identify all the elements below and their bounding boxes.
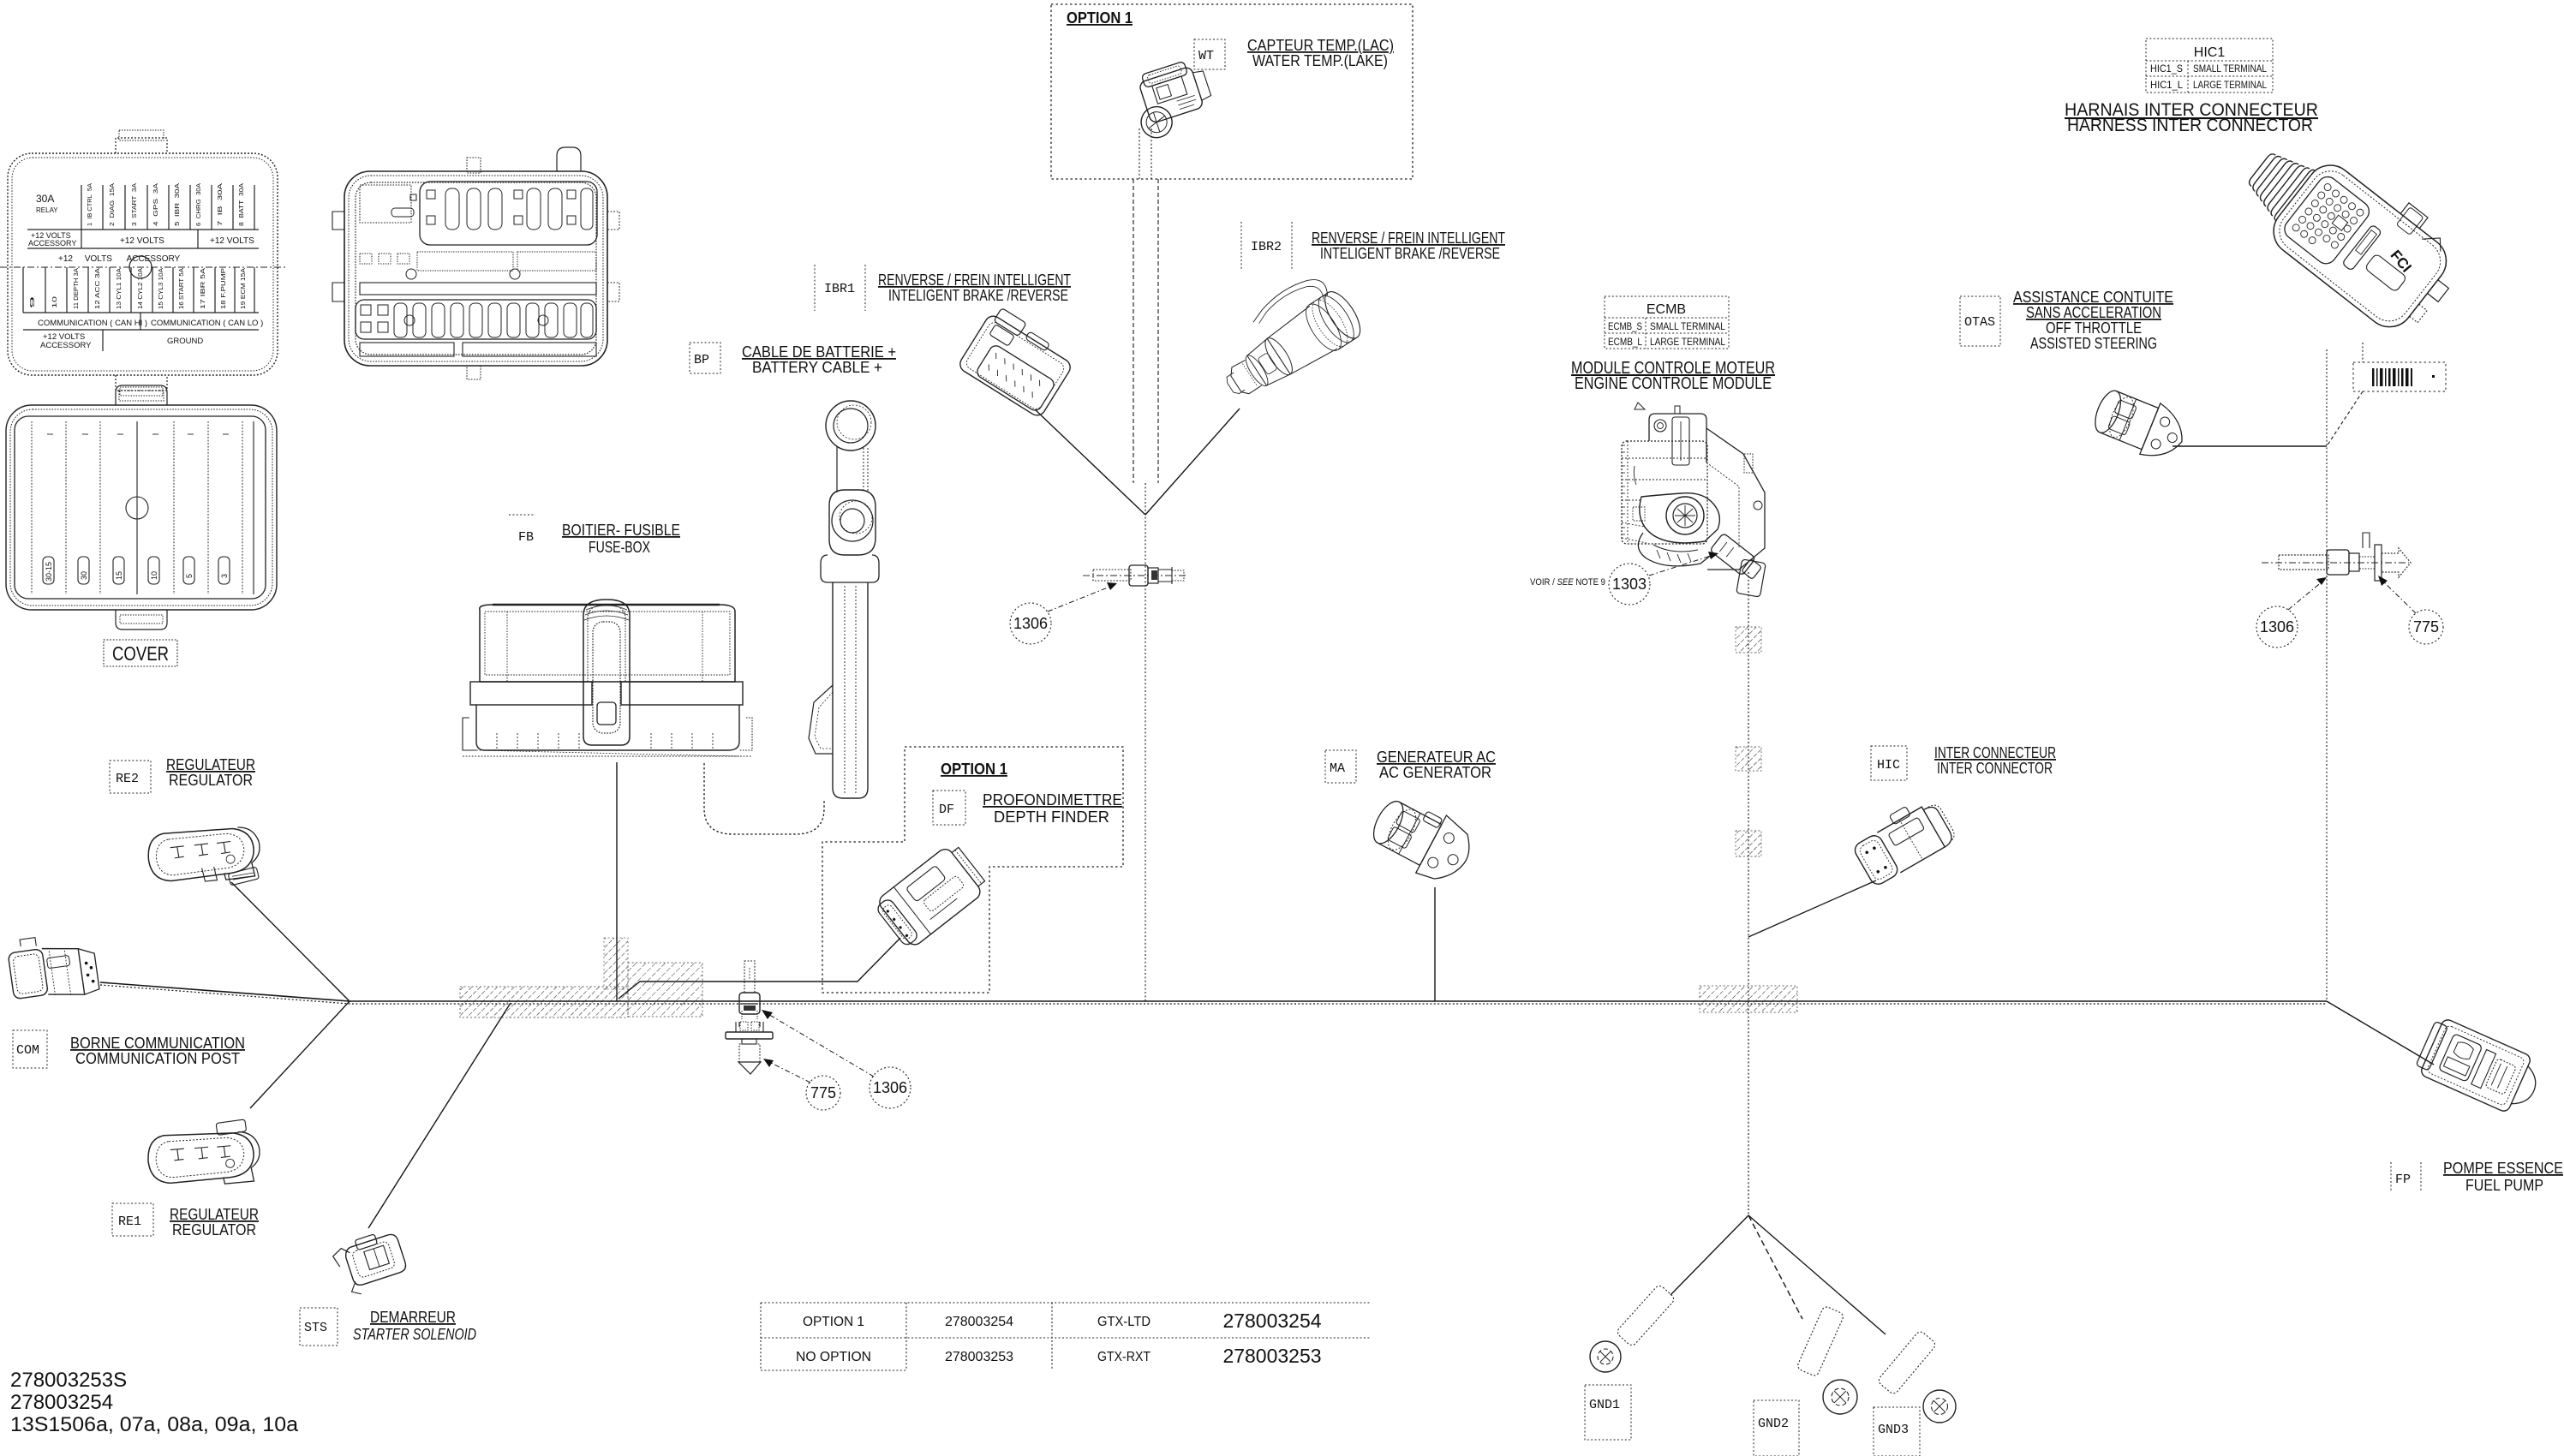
svg-text:ECMB_L: ECMB_L <box>1608 336 1642 348</box>
svg-text:BATTERY CABLE +: BATTERY CABLE + <box>752 359 882 376</box>
svg-text:15 CYL3 10A: 15 CYL3 10A <box>157 268 164 309</box>
svg-text:3: 3 <box>220 574 229 578</box>
svg-text:13 CYL1 10A: 13 CYL1 10A <box>115 268 123 309</box>
svg-text:GND1: GND1 <box>1589 1398 1620 1412</box>
svg-text:GROUND: GROUND <box>167 337 203 346</box>
svg-text:+12 VOLTS ACCESSORY: +12 VOLTS ACCESSORY <box>58 254 181 264</box>
svg-text:OFF THROTTLE: OFF THROTTLE <box>2046 319 2142 337</box>
svg-text:DEPTH FINDER: DEPTH FINDER <box>994 809 1109 826</box>
svg-text:ENGINE CONTROLE MODULE: ENGINE CONTROLE MODULE <box>1575 374 1772 393</box>
svg-text:HARNESS INTER CONNECTOR: HARNESS INTER CONNECTOR <box>2067 116 2313 135</box>
svg-text:STARTER SOLENOID: STARTER SOLENOID <box>353 1326 476 1343</box>
svg-text:CAPTEUR TEMP.(LAC): CAPTEUR TEMP.(LAC) <box>1247 37 1394 54</box>
svg-text:30A: 30A <box>36 193 54 205</box>
svg-text:775: 775 <box>2413 618 2439 636</box>
svg-text:BORNE COMMUNICATION: BORNE COMMUNICATION <box>70 1035 245 1052</box>
svg-text:INTER CONNECTOR: INTER CONNECTOR <box>1937 760 2053 777</box>
svg-text:5: 5 <box>185 574 194 578</box>
svg-text:SMALL TERMINAL: SMALL TERMINAL <box>2193 63 2267 75</box>
svg-text:7 IB 30A: 7 IB 30A <box>216 183 224 226</box>
svg-text:ECMB: ECMB <box>1647 302 1686 317</box>
svg-text:2 DIAG 15A: 2 DIAG 15A <box>108 183 116 226</box>
svg-text:COMMUNICATION ( CAN HI ): COMMUNICATION ( CAN HI ) <box>38 319 147 328</box>
svg-text:IBR2: IBR2 <box>1251 240 1282 254</box>
svg-text:COMMUNICATION ( CAN LO ): COMMUNICATION ( CAN LO ) <box>151 319 263 328</box>
svg-text:VOIR / SEE NOTE 9: VOIR / SEE NOTE 9 <box>1530 577 1605 588</box>
svg-text:IBR1: IBR1 <box>824 282 855 296</box>
svg-text:BOITIER- FUSIBLE: BOITIER- FUSIBLE <box>562 522 680 539</box>
svg-text:INTELIGENT BRAKE /REVERSE: INTELIGENT BRAKE /REVERSE <box>888 287 1068 304</box>
svg-text:OPTION 1: OPTION 1 <box>941 761 1007 778</box>
svg-text:REGULATEUR: REGULATEUR <box>170 1206 259 1223</box>
svg-text:CABLE DE BATTERIE +: CABLE DE BATTERIE + <box>742 343 896 361</box>
svg-text:15: 15 <box>115 571 123 580</box>
svg-text:FUEL PUMP: FUEL PUMP <box>2465 1177 2543 1194</box>
svg-text:RENVERSE / FREIN INTELLIGENT: RENVERSE / FREIN INTELLIGENT <box>1312 230 1505 247</box>
svg-text:SMALL TERMINAL: SMALL TERMINAL <box>1650 320 1725 332</box>
svg-text:PROFONDIMETTRE: PROFONDIMETTRE <box>983 791 1122 809</box>
svg-text:278003253: 278003253 <box>1222 1345 1321 1367</box>
svg-text:6 CHRG 30A: 6 CHRG 30A <box>194 183 202 226</box>
svg-text:278003253S: 278003253S <box>10 1369 127 1392</box>
svg-text:5 IBR 30A: 5 IBR 30A <box>173 183 181 226</box>
svg-text:10: 10 <box>51 296 58 308</box>
svg-text:1 IB CTRL 5A: 1 IB CTRL 5A <box>86 183 93 226</box>
svg-text:8 BATT 30A: 8 BATT 30A <box>237 183 245 226</box>
svg-text:13S1506a, 07a, 08a, 09a, 10a: 13S1506a, 07a, 08a, 09a, 10a <box>10 1413 299 1436</box>
svg-text:12 ACC 3A: 12 ACC 3A <box>93 268 101 309</box>
svg-text:AC GENERATOR: AC GENERATOR <box>1379 764 1491 781</box>
svg-text:RELAY: RELAY <box>36 206 58 214</box>
svg-text:STS: STS <box>304 1321 327 1335</box>
svg-text:+12 VOLTS: +12 VOLTS <box>210 236 254 246</box>
svg-text:11 DEPTH 3A: 11 DEPTH 3A <box>72 268 80 309</box>
svg-text:LARGE TERMINAL: LARGE TERMINAL <box>1650 336 1725 348</box>
svg-text:OTAS: OTAS <box>1964 315 1995 330</box>
svg-text:19 ECM 15A: 19 ECM 15A <box>239 268 247 309</box>
svg-text:COM: COM <box>16 1043 39 1058</box>
svg-text:30: 30 <box>80 571 88 580</box>
svg-text:+12 VOLTS: +12 VOLTS <box>120 236 164 246</box>
svg-text:GTX-RXT: GTX-RXT <box>1097 1350 1151 1364</box>
svg-text:278003254: 278003254 <box>10 1391 113 1414</box>
svg-text:LARGE TERMINAL: LARGE TERMINAL <box>2193 79 2267 91</box>
svg-text:ACCESSORY: ACCESSORY <box>28 239 76 248</box>
svg-text:NO OPTION: NO OPTION <box>796 1350 871 1364</box>
svg-text:OPTION 1: OPTION 1 <box>803 1315 864 1329</box>
svg-text:COVER: COVER <box>112 642 169 665</box>
svg-text:HIC1_L: HIC1_L <box>2150 79 2183 91</box>
svg-text:REGULATEUR: REGULATEUR <box>166 756 255 773</box>
svg-text:18 F.PUMP: 18 F.PUMP <box>219 268 227 309</box>
svg-text:HIC1_S: HIC1_S <box>2150 63 2183 75</box>
svg-text:16 START 5A: 16 START 5A <box>177 268 185 309</box>
svg-text:278003253: 278003253 <box>945 1350 1013 1364</box>
svg-text:BP: BP <box>694 353 709 367</box>
svg-text:4 GPS 3A: 4 GPS 3A <box>152 183 159 226</box>
svg-text:ECMB_S: ECMB_S <box>1608 320 1642 332</box>
svg-text:ASSISTED STEERING: ASSISTED STEERING <box>2030 335 2157 352</box>
svg-text:278003254: 278003254 <box>1222 1310 1321 1332</box>
svg-text:FUSE-BOX: FUSE-BOX <box>589 539 650 556</box>
svg-text:RE2: RE2 <box>116 772 139 786</box>
svg-text:FP: FP <box>2395 1173 2411 1187</box>
svg-text:1306: 1306 <box>873 1079 907 1096</box>
svg-text:GTX-LTD: GTX-LTD <box>1097 1315 1151 1329</box>
svg-text:9: 9 <box>28 296 36 308</box>
svg-text:MA: MA <box>1330 761 1345 776</box>
svg-text:278003254: 278003254 <box>945 1315 1013 1329</box>
svg-text:POMPE ESSENCE: POMPE ESSENCE <box>2443 1160 2563 1177</box>
svg-text:HIC: HIC <box>1877 758 1900 773</box>
svg-text:10: 10 <box>150 571 158 580</box>
svg-text:14 CYL2 10A: 14 CYL2 10A <box>136 268 144 309</box>
svg-text:30-15: 30-15 <box>45 562 53 582</box>
svg-text:WATER TEMP.(LAKE): WATER TEMP.(LAKE) <box>1252 52 1388 69</box>
svg-text:3 START 3A: 3 START 3A <box>130 183 138 226</box>
svg-text:RE1: RE1 <box>118 1214 141 1229</box>
svg-text:DEMARREUR: DEMARREUR <box>370 1309 456 1326</box>
svg-text:775: 775 <box>810 1084 836 1101</box>
svg-text:GENERATEUR AC: GENERATEUR AC <box>1377 749 1496 766</box>
svg-text:COMMUNICATION POST: COMMUNICATION POST <box>75 1050 240 1067</box>
svg-text:ASSISTANCE CONTUITE: ASSISTANCE CONTUITE <box>2013 289 2173 306</box>
svg-text:HIC1: HIC1 <box>2194 45 2226 60</box>
svg-text:GND2: GND2 <box>1758 1417 1789 1431</box>
svg-text:GND3: GND3 <box>1878 1423 1909 1437</box>
svg-text:WT: WT <box>1198 49 1214 63</box>
svg-text:INTER CONNECTEUR: INTER CONNECTEUR <box>1934 744 2056 761</box>
svg-text:1303: 1303 <box>1612 576 1647 593</box>
svg-text:ACCESSORY: ACCESSORY <box>40 341 92 350</box>
svg-text:17 IBR 5A: 17 IBR 5A <box>199 268 206 309</box>
svg-text:1306: 1306 <box>2260 618 2294 636</box>
svg-text:FB: FB <box>518 530 534 545</box>
svg-text:SANS ACCELERATION: SANS ACCELERATION <box>2026 304 2161 321</box>
svg-text:OPTION 1: OPTION 1 <box>1067 9 1133 27</box>
svg-text:REGULATOR: REGULATOR <box>169 772 253 789</box>
svg-text:DF: DF <box>939 803 954 817</box>
svg-text:REGULATOR: REGULATOR <box>172 1221 256 1238</box>
svg-text:INTELIGENT BRAKE /REVERSE: INTELIGENT BRAKE /REVERSE <box>1320 245 1500 262</box>
svg-text:RENVERSE / FREIN INTELLIGENT: RENVERSE / FREIN INTELLIGENT <box>878 272 1071 289</box>
svg-text:1306: 1306 <box>1013 615 1048 632</box>
